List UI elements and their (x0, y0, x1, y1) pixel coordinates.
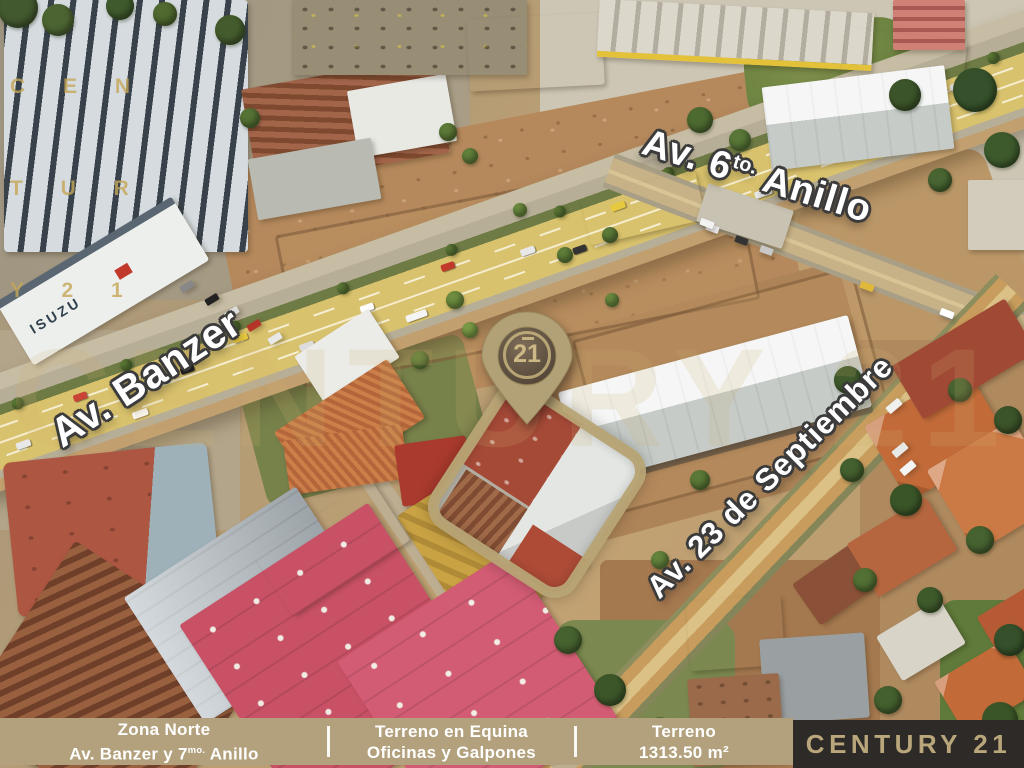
century21-logo: CENTURY 21 (793, 720, 1024, 768)
watermark-line: T U R (10, 172, 146, 206)
info-superscript: mo. (188, 745, 206, 755)
tree (953, 68, 997, 112)
tree (853, 568, 877, 592)
watermark-line: C E N (10, 70, 146, 104)
tree (928, 168, 952, 192)
tree (687, 107, 713, 133)
tree (240, 108, 260, 128)
tree (917, 587, 943, 613)
info-line: Zona Norte (118, 719, 211, 740)
tree (554, 626, 582, 654)
watermark-line: Y 2 1 (10, 274, 146, 308)
tree (557, 247, 573, 263)
info-line: 1313.50 m² (639, 742, 729, 763)
tree (994, 624, 1024, 656)
real-estate-aerial-flyer: ISUZU CENTURY 21 Av. 6to. Anillo Av. Ban… (0, 0, 1024, 768)
tree (890, 484, 922, 516)
tree (462, 148, 478, 164)
location-pin: 21 (481, 311, 573, 425)
tree (874, 686, 902, 714)
tree (153, 2, 177, 26)
tree (889, 79, 921, 111)
tree (215, 15, 245, 45)
tree (966, 526, 994, 554)
tree (594, 674, 626, 706)
info-line: Terreno en Equina (375, 721, 528, 742)
tree (446, 291, 464, 309)
corner-watermark: C E N T U R Y 2 1 (10, 2, 146, 376)
tree (605, 293, 619, 307)
info-cell-area: Terreno 1313.50 m² (575, 721, 793, 763)
tree (513, 203, 527, 217)
info-text: Anillo (205, 744, 258, 763)
bar-divider (574, 726, 577, 757)
tree (602, 227, 618, 243)
info-line: Av. Banzer y 7mo. Anillo (69, 740, 258, 765)
info-line: Oficinas y Galpones (367, 742, 536, 763)
info-bar: Zona Norte Av. Banzer y 7mo. Anillo Terr… (0, 718, 793, 765)
info-text: Av. Banzer y 7 (69, 744, 188, 763)
tree (439, 123, 457, 141)
century21-logo-text: CENTURY 21 (806, 729, 1011, 760)
bar-divider (327, 726, 330, 757)
info-line: Terreno (652, 721, 716, 742)
tree (984, 132, 1020, 168)
info-cell-type: Terreno en Equina Oficinas y Galpones (328, 721, 575, 763)
info-cell-location: Zona Norte Av. Banzer y 7mo. Anillo (0, 719, 328, 765)
pin-teardrop-icon (481, 311, 573, 425)
